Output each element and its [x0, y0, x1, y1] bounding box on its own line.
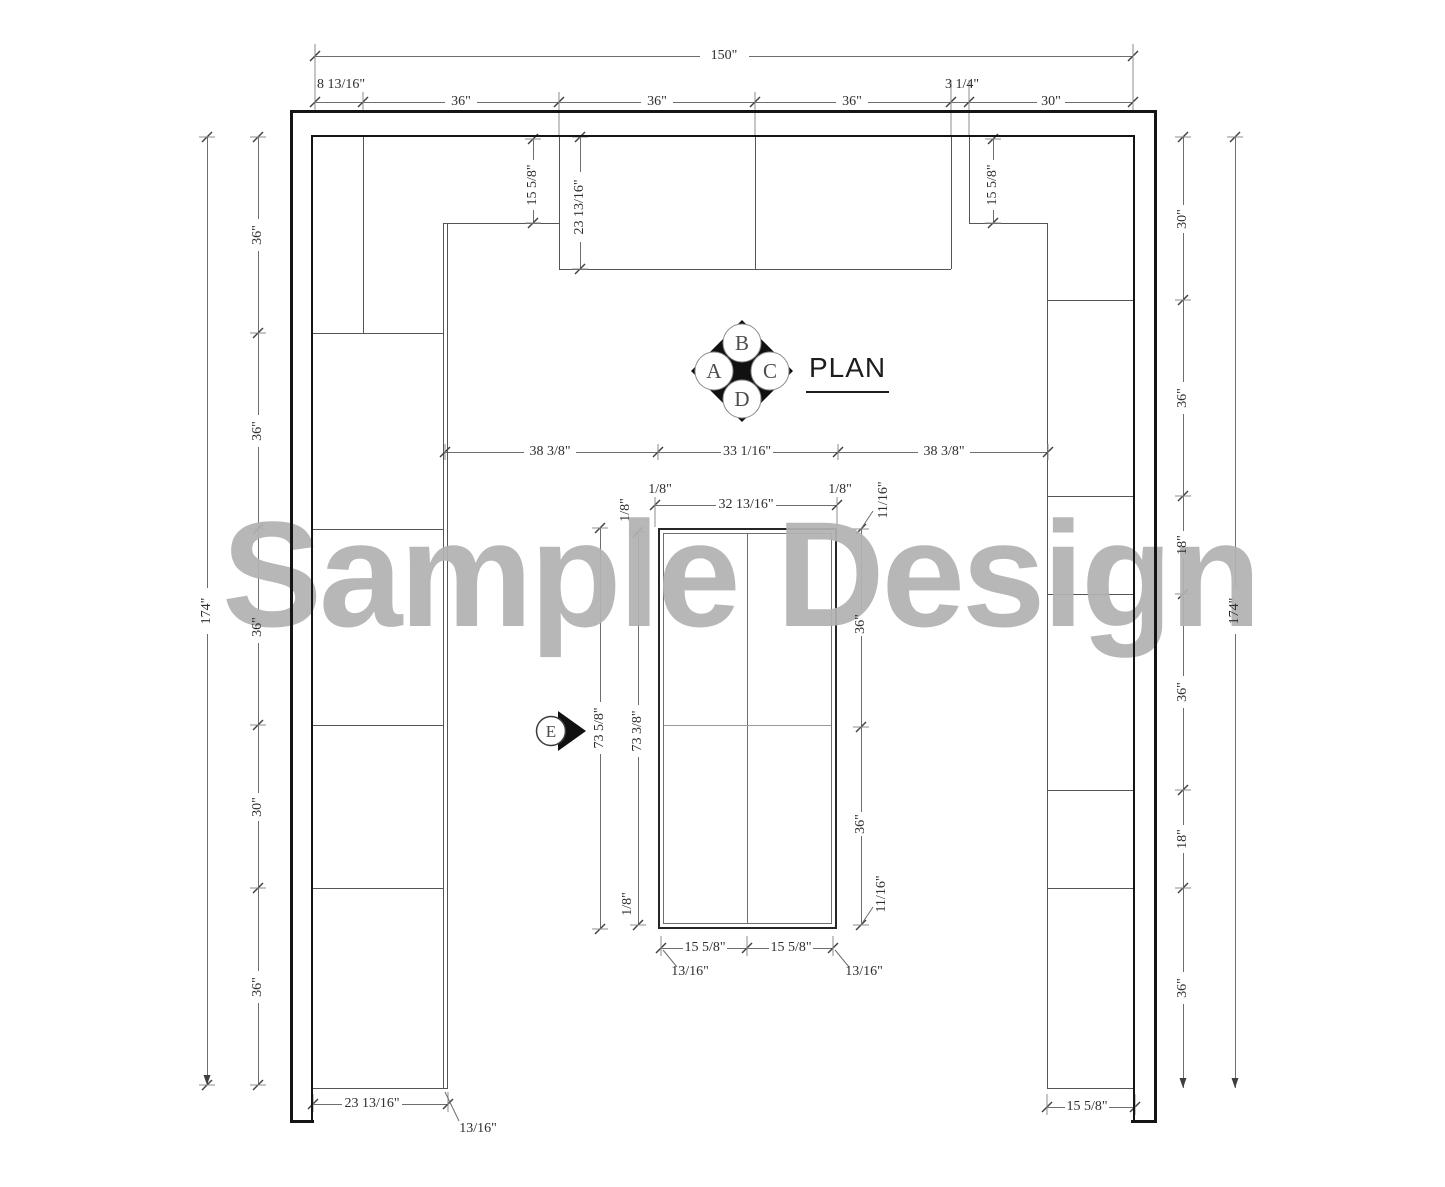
leader-line: [861, 907, 873, 925]
watermark-text: Sample Design: [222, 488, 1232, 661]
dimension-label: 8 13/16": [317, 78, 365, 92]
dimension-label: 13/16": [845, 965, 883, 979]
dimension-arrow: [1180, 1078, 1187, 1088]
dimension-label: 1/8": [619, 498, 633, 522]
dimension-label: 36": [854, 614, 868, 634]
wall-line: [290, 110, 293, 1123]
dimension-label: 23 13/16": [344, 1097, 399, 1111]
dimension-label: 36": [451, 95, 471, 109]
dimension-label: 73 3/8": [631, 710, 645, 751]
dimension-label: 33 1/16": [723, 445, 771, 459]
dimension-label: 36": [1176, 978, 1190, 998]
dimension-label: 23 13/16": [573, 179, 587, 234]
dimension-label: 13/16": [671, 965, 709, 979]
compass-letter-a: A: [706, 359, 722, 383]
dimension-label: 36": [854, 814, 868, 834]
dimension-label: 174": [1228, 598, 1242, 625]
dimension-label: 30": [1176, 209, 1190, 229]
dimension-label: 15 5/8": [770, 941, 811, 955]
dimension-label: 36": [251, 225, 265, 245]
dimension-label: 18": [1176, 535, 1190, 555]
dimension-label: 36": [251, 421, 265, 441]
dimension-label: 11/16": [877, 481, 891, 518]
dimension-arrow: [1232, 1078, 1239, 1088]
leader-line: [445, 1092, 459, 1121]
dimension-label: 150": [711, 49, 738, 63]
dimension-label: 15 5/8": [526, 164, 540, 205]
elevation-letter: E: [546, 722, 556, 741]
dimension-label: 36": [1176, 682, 1190, 702]
elevation-marker: E: [528, 705, 592, 757]
dimension-label: 38 3/8": [529, 445, 570, 459]
dimension-label: 36": [842, 95, 862, 109]
compass-letter-d: D: [734, 387, 749, 411]
dimension-label: 73 5/8": [593, 707, 607, 748]
dimension-label: 1/8": [828, 483, 852, 497]
dimension-label: 30": [1041, 95, 1061, 109]
wall-line: [1154, 110, 1157, 1123]
dimension-label: 1/8": [648, 483, 672, 497]
dimension-label: 13/16": [459, 1122, 497, 1136]
dimension-label: 15 5/8": [1066, 1100, 1107, 1114]
wall-line: [1131, 1120, 1157, 1123]
compass-letter-c: C: [763, 359, 777, 383]
wall-line: [311, 135, 1135, 137]
wall-line: [1133, 135, 1135, 1123]
dimension-label: 11/16": [875, 875, 889, 912]
wall-line: [311, 135, 313, 1123]
dimension-label: 36": [251, 977, 265, 997]
dimension-label: 3 1/4": [945, 78, 979, 92]
dimension-label: 15 5/8": [986, 164, 1000, 205]
dimension-label: 32 13/16": [718, 498, 773, 512]
dimension-label: 36": [251, 617, 265, 637]
plan-compass-symbol: B C D A: [687, 316, 797, 426]
plan-title: PLAN: [806, 352, 889, 393]
wall-line: [290, 110, 1157, 113]
dimension-label: 36": [1176, 388, 1190, 408]
dimension-label: 174": [200, 598, 214, 625]
dimension-label: 18": [1176, 829, 1190, 849]
floor-plan-canvas: 150"8 13/16"36"36"36"3 1/4"30"174"36"36"…: [0, 0, 1445, 1187]
dimension-label: 38 3/8": [923, 445, 964, 459]
wall-line: [290, 1120, 314, 1123]
dimension-label: 1/8": [621, 892, 635, 916]
dimension-label: 36": [647, 95, 667, 109]
dimension-label: 30": [251, 797, 265, 817]
compass-letter-b: B: [735, 331, 749, 355]
dimension-label: 15 5/8": [684, 941, 725, 955]
